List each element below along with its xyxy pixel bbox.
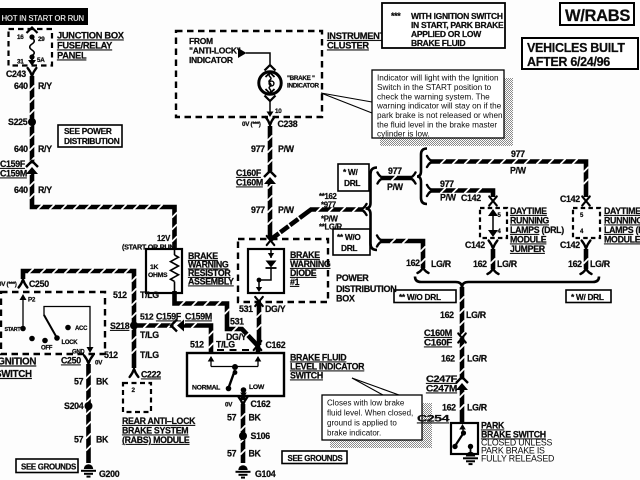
svg-text:** W/O: ** W/O [337,232,361,242]
svg-text:fluid level. When closed,: fluid level. When closed, [327,409,413,418]
svg-text:BK: BK [249,413,262,423]
svg-text:LAMPS (D: LAMPS (D [604,225,640,235]
svg-text:57: 57 [227,449,237,459]
svg-text:G104: G104 [255,469,276,479]
svg-text:S106: S106 [251,431,271,441]
svg-text:162: 162 [442,403,456,413]
svg-text:640: 640 [14,81,28,91]
svg-text:INDICATOR: INDICATOR [189,55,233,65]
svg-text:C162: C162 [266,340,286,350]
svg-text:531: 531 [239,304,253,314]
svg-text:C250: C250 [61,356,81,366]
svg-text:C142: C142 [461,193,481,203]
svg-text:LG/R: LG/R [467,354,488,364]
svg-text:SWITCH: SWITCH [290,371,323,381]
svg-text:BK: BK [96,435,109,445]
svg-text:P2: P2 [28,297,36,304]
svg-text:C159F: C159F [156,312,182,322]
svg-text:C254: C254 [417,414,451,424]
svg-text:R/Y: R/Y [38,144,52,154]
svg-text:C250: C250 [29,279,49,289]
svg-text:(RABS) MODULE: (RABS) MODULE [122,435,190,445]
svg-text:57: 57 [74,435,84,445]
svg-text:"BRAKE ": "BRAKE " [287,75,315,82]
svg-text:G200: G200 [99,469,120,479]
svg-text:LOCK: LOCK [62,340,79,346]
svg-text:LG/R: LG/R [467,403,488,413]
svg-text:* W/ DRL: * W/ DRL [571,292,604,302]
svg-text:LG/R: LG/R [431,259,452,269]
svg-text:SWITCH: SWITCH [0,369,32,380]
svg-text:512: 512 [190,340,204,350]
svg-text:ASSEMBLY: ASSEMBLY [188,277,234,287]
svg-text:0V (***): 0V (***) [0,281,17,288]
svg-text:the fluid level in the brake m: the fluid level in the brake master [377,121,497,130]
svg-text:16: 16 [17,34,24,41]
svg-text:C159M: C159M [0,169,27,179]
svg-text:0V: 0V [95,360,103,367]
svg-text:P/W: P/W [387,182,404,192]
svg-text:977: 977 [251,144,265,154]
svg-text:LG/R: LG/R [590,259,611,269]
svg-text:park brake is not released or: park brake is not released or when [377,111,503,120]
svg-text:R/Y: R/Y [38,185,52,195]
svg-text:C162: C162 [251,399,271,409]
svg-text:57: 57 [227,413,237,423]
svg-text:S225: S225 [8,117,28,127]
svg-text:P/W: P/W [440,193,457,203]
svg-text:640: 640 [14,185,28,195]
svg-text:C243: C243 [6,69,26,79]
svg-text:brake indicator.: brake indicator. [327,429,381,438]
svg-text:531: 531 [230,317,244,327]
svg-text:INSTRUMENT: INSTRUMENT [327,31,386,41]
svg-text:POWER: POWER [336,273,369,283]
svg-text:OFF: OFF [41,346,53,352]
svg-text:SEE GROUNDS: SEE GROUNDS [288,454,343,463]
svg-text:C222: C222 [141,370,161,380]
svg-text:RUNNING: RUNNING [510,216,549,226]
svg-text:C159M: C159M [185,312,212,322]
svg-text:T/LG: T/LG [140,350,159,360]
svg-text:FROM: FROM [189,36,213,46]
svg-text:HOT IN START OR RUN: HOT IN START OR RUN [2,14,85,23]
svg-text:AFTER 6/24/96: AFTER 6/24/96 [527,55,610,69]
svg-text:P/W: P/W [278,205,295,215]
svg-text:P/W: P/W [278,144,295,154]
svg-text:977: 977 [251,205,265,215]
svg-text:1K: 1K [150,264,158,271]
svg-text:INDICATOR: INDICATOR [287,83,319,90]
svg-text:FUSE/RELAY: FUSE/RELAY [57,41,113,51]
svg-text:BK: BK [96,377,109,387]
svg-text:check the warning system. Th: check the warning system. The [377,92,490,101]
svg-text:T/LG: T/LG [216,340,235,350]
svg-text:57: 57 [74,377,84,387]
svg-text:C238: C238 [278,119,298,129]
svg-text:RUNNING: RUNNING [604,216,640,226]
svg-text:10: 10 [275,108,282,115]
svg-text:512: 512 [104,350,118,360]
svg-text:#1: #1 [290,277,300,287]
svg-text:512: 512 [113,290,127,300]
svg-text:512: 512 [140,312,154,322]
svg-text:DAYTIME: DAYTIME [604,206,640,216]
svg-text:R/Y: R/Y [38,81,52,91]
svg-text:OHMS: OHMS [148,272,168,279]
svg-text:ground is applied to: ground is applied to [327,419,397,428]
svg-text:162: 162 [440,310,454,320]
svg-text:START: START [5,327,22,333]
svg-text:C142: C142 [560,240,580,250]
svg-text:MODULE: MODULE [510,235,547,245]
svg-text:DISTRIBUTION: DISTRIBUTION [336,284,396,294]
svg-text:162: 162 [441,354,455,364]
svg-text:REAR ANTI–LOCK: REAR ANTI–LOCK [122,416,196,426]
svg-text:BOX: BOX [336,294,355,304]
svg-text:162: 162 [406,258,420,268]
svg-text:LG/R: LG/R [466,310,487,320]
svg-text:C160F: C160F [236,168,262,178]
svg-text:977: 977 [440,179,454,189]
svg-text:C159F: C159F [0,159,26,169]
svg-text:Switch in the START position t: Switch in the START position to [377,83,492,92]
svg-text:C247M: C247M [426,384,457,394]
svg-text:BRAKE FLUID: BRAKE FLUID [411,38,465,48]
svg-text:DAYTIME: DAYTIME [510,206,547,216]
svg-text:***: *** [391,11,401,21]
svg-text:"ANTI-LOCK": "ANTI-LOCK" [189,46,241,56]
svg-text:C247F: C247F [426,374,458,384]
svg-text:0V: 0V [225,402,233,409]
svg-text:IGNITION: IGNITION [0,357,36,368]
svg-text:640: 640 [14,144,28,154]
svg-text:S204: S204 [64,401,84,411]
svg-text:T/LG: T/LG [140,290,159,300]
svg-text:LOW: LOW [249,384,265,391]
svg-text:MODULE: MODULE [604,235,640,245]
svg-text:NORMAL: NORMAL [192,385,220,392]
svg-text:P/W: P/W [510,166,527,176]
svg-text:DG/Y: DG/Y [265,304,286,314]
svg-text:DRL: DRL [344,178,360,188]
svg-text:LAMPS (DRL): LAMPS (DRL) [510,225,564,235]
svg-text:** W/O DRL: ** W/O DRL [399,292,441,302]
svg-text:JUNCTION BOX: JUNCTION BOX [57,31,125,41]
svg-text:JUMPER: JUMPER [510,244,546,254]
svg-text:C160F: C160F [424,338,453,348]
svg-text:977: 977 [388,166,402,176]
svg-text:LG/R: LG/R [497,259,518,269]
svg-text:warning indicator will stay on: warning indicator will stay on if the [376,102,502,111]
svg-text:BRAKE SYSTEM: BRAKE SYSTEM [122,426,188,436]
svg-text:C142: C142 [560,194,580,204]
svg-text:SEE GROUNDS: SEE GROUNDS [21,463,76,472]
svg-text:0V (***): 0V (***) [242,121,261,128]
svg-text:FULLY RELEASED: FULLY RELEASED [481,454,554,464]
svg-text:5A: 5A [37,57,45,64]
svg-text:29: 29 [38,36,45,43]
svg-text:VEHICLES BUILT: VEHICLES BUILT [527,41,625,55]
svg-text:ACC: ACC [75,326,88,332]
svg-text:C142: C142 [465,240,485,250]
svg-text:C160M: C160M [236,178,263,188]
svg-text:PANEL: PANEL [57,51,87,61]
svg-text:162: 162 [568,259,582,269]
svg-text:SEE POWER: SEE POWER [64,126,112,136]
svg-text:BK: BK [249,449,262,459]
svg-text:CLUSTER: CLUSTER [327,41,369,51]
svg-text:977: 977 [511,149,525,159]
svg-text:S218: S218 [110,321,130,331]
svg-text:T/LG: T/LG [140,330,159,340]
svg-text:cylinder is low.: cylinder is low. [377,130,430,139]
svg-text:Closes with low brake: Closes with low brake [327,399,405,408]
svg-text:W/RABS: W/RABS [565,7,630,25]
svg-text:DISTRIBUTION: DISTRIBUTION [64,136,120,146]
svg-text:162: 162 [473,259,487,269]
svg-text:31: 31 [17,59,24,66]
svg-text:Indicator will light with the: Indicator will light with the Ignition [377,74,499,83]
svg-text:* W/: * W/ [343,167,358,177]
svg-text:C160M: C160M [424,328,452,338]
svg-text:*977: *977 [321,201,336,210]
svg-text:DRL: DRL [341,243,357,253]
